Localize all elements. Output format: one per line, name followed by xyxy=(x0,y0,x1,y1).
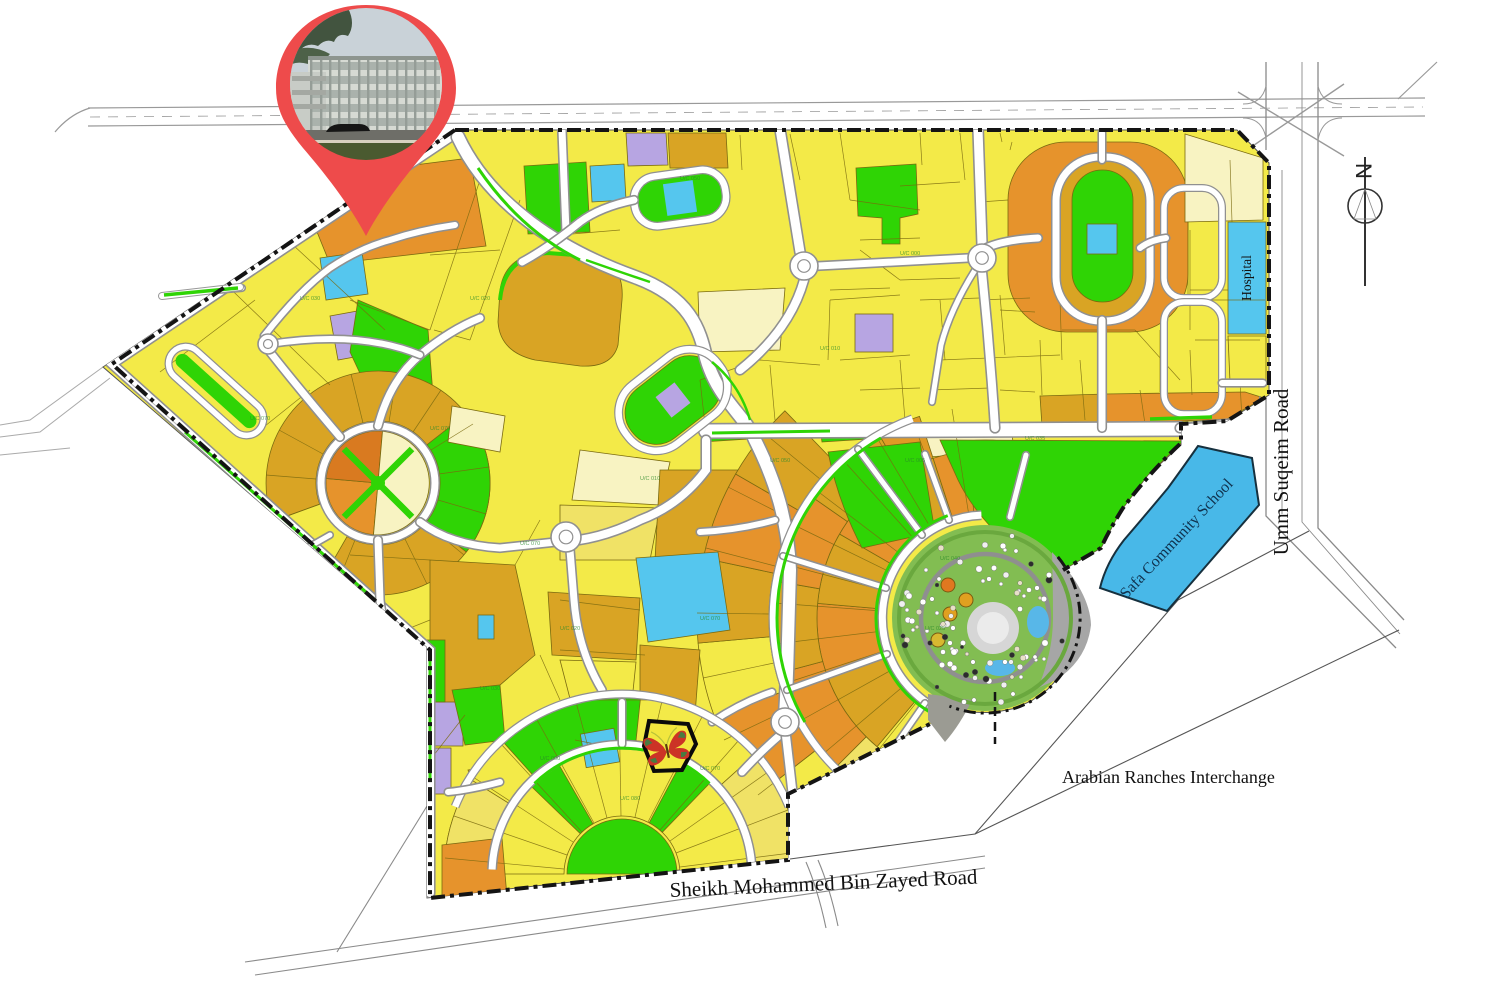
svg-text:U/C 030: U/C 030 xyxy=(480,686,500,692)
svg-text:U/C 000: U/C 000 xyxy=(900,251,920,257)
svg-text:U/C 020: U/C 020 xyxy=(470,296,490,302)
svg-text:U/C 010: U/C 010 xyxy=(640,476,660,482)
svg-text:U/C 080: U/C 080 xyxy=(620,796,640,802)
svg-text:U/C 040: U/C 040 xyxy=(940,556,960,562)
svg-text:U/C 010: U/C 010 xyxy=(820,346,840,352)
svg-text:U/C 020: U/C 020 xyxy=(560,626,580,632)
svg-text:U/C 070: U/C 070 xyxy=(520,541,540,547)
svg-text:Umm Suqeim Road: Umm Suqeim Road xyxy=(1269,388,1293,555)
svg-text:U/C 035: U/C 035 xyxy=(1025,436,1045,442)
svg-text:N: N xyxy=(1351,163,1376,179)
svg-text:U/C 000: U/C 000 xyxy=(540,756,560,762)
svg-text:U/C 070: U/C 070 xyxy=(250,416,270,422)
svg-text:U/C 005: U/C 005 xyxy=(905,458,925,464)
svg-text:Hospital: Hospital xyxy=(1239,255,1254,301)
svg-text:Arabian Ranches Interchange: Arabian Ranches Interchange xyxy=(1062,767,1275,787)
svg-text:U/C 070: U/C 070 xyxy=(700,766,720,772)
svg-text:U/C 025: U/C 025 xyxy=(925,626,945,632)
svg-text:U/C 030: U/C 030 xyxy=(300,296,320,302)
svg-text:U/C 070: U/C 070 xyxy=(430,426,450,432)
svg-text:U/C 050: U/C 050 xyxy=(770,458,790,464)
svg-text:U/C 070: U/C 070 xyxy=(700,616,720,622)
svg-text:U/C 050: U/C 050 xyxy=(680,176,700,182)
